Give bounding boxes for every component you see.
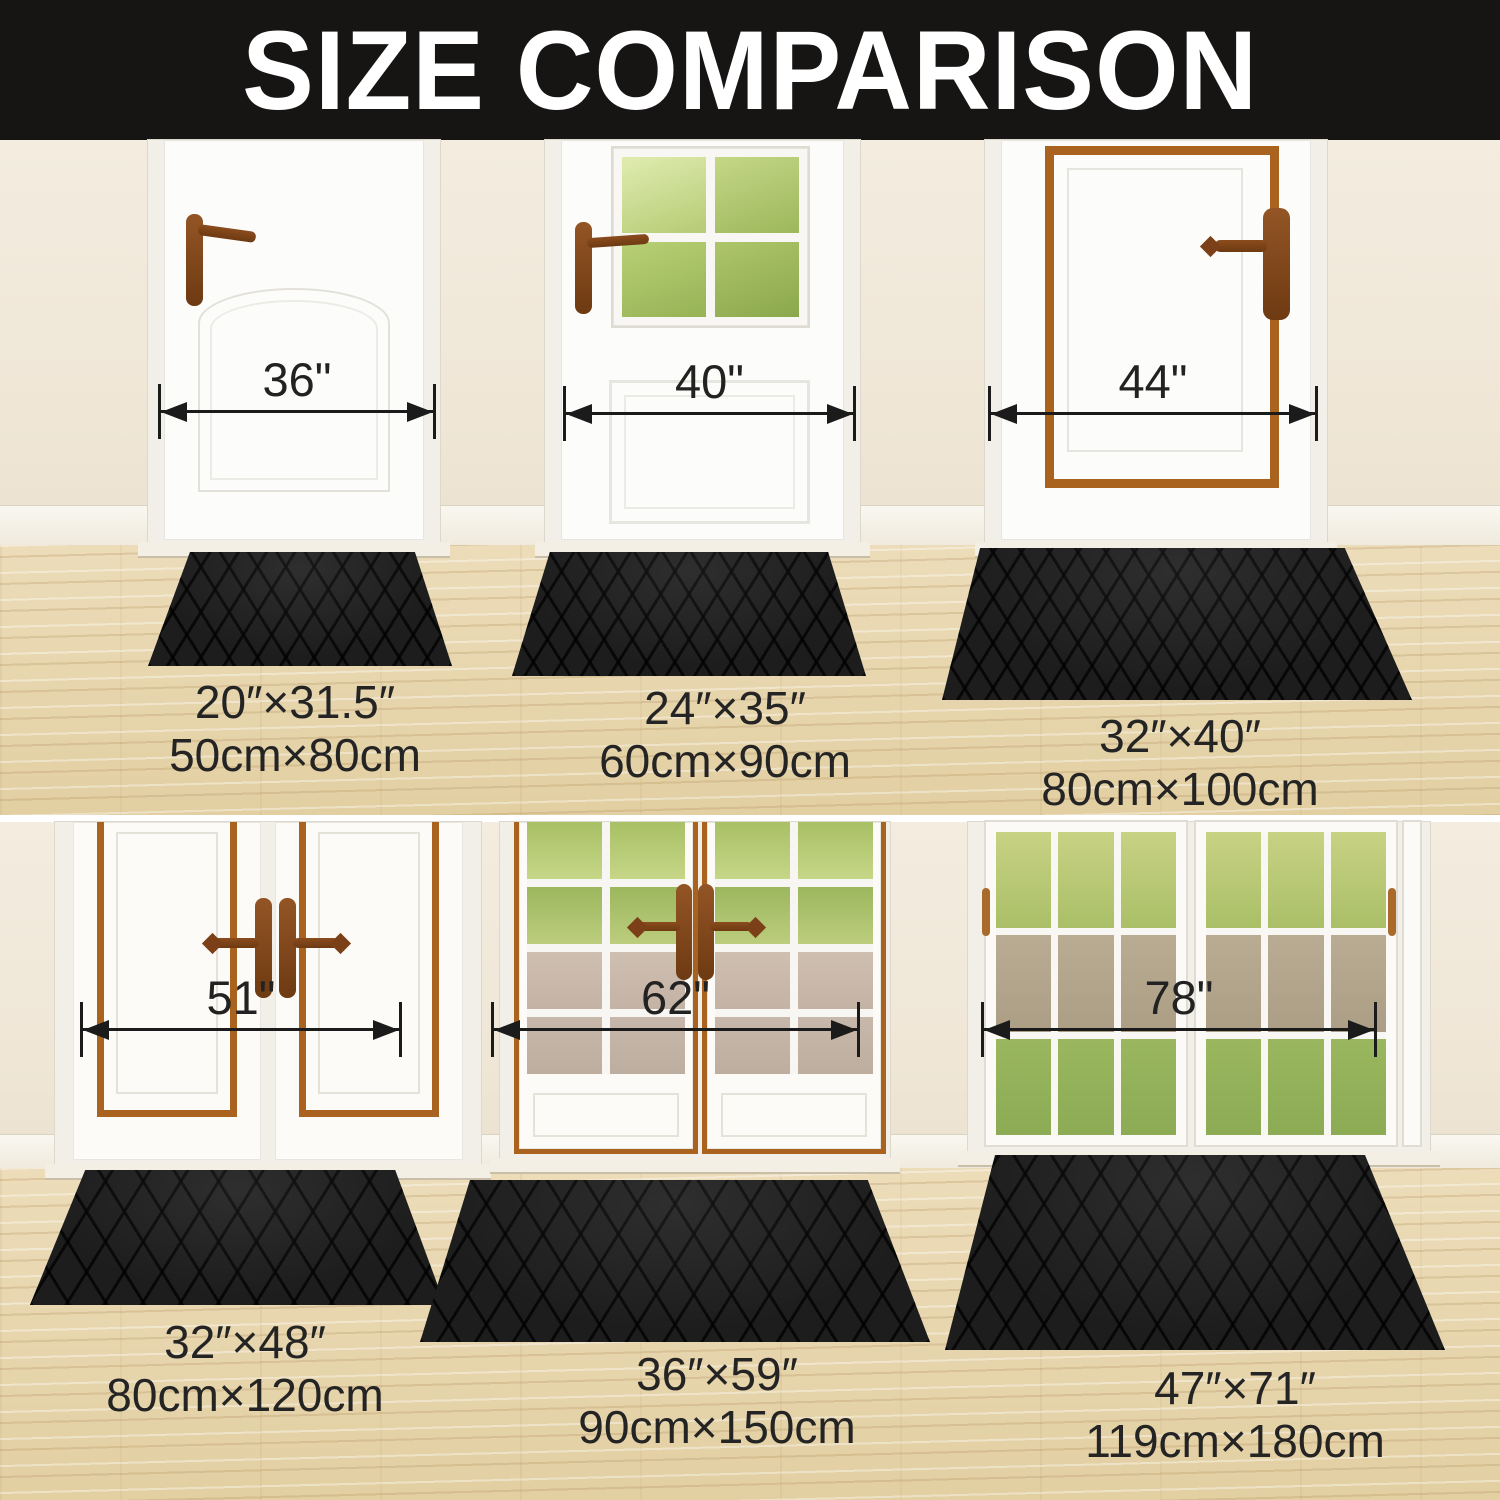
measurement-label: 78"	[981, 970, 1377, 1025]
door-handle-lever	[198, 224, 257, 243]
arrowhead-left-icon	[984, 1020, 1010, 1040]
size-cm: 119cm×180cm	[1070, 1415, 1400, 1468]
doormat-20x31	[148, 552, 452, 666]
doormat-36x59	[420, 1180, 930, 1342]
measurement-51: 51"	[80, 948, 402, 1088]
title-banner: SIZE COMPARISON	[0, 0, 1500, 140]
size-inches: 32″×48″	[80, 1316, 410, 1369]
measurement-tick	[1315, 386, 1318, 441]
size-inches: 24″×35″	[560, 682, 890, 735]
doormat-32x48	[30, 1170, 445, 1305]
doormat-24x35	[512, 552, 866, 676]
panel-divider	[0, 815, 1500, 822]
size-cm: 80cm×100cm	[1015, 763, 1345, 816]
measurement-line	[160, 410, 434, 413]
measurement-line	[82, 1028, 400, 1031]
arrowhead-left-icon	[494, 1020, 520, 1040]
measurement-tick	[433, 384, 436, 439]
arrowhead-right-icon	[407, 402, 433, 422]
measurement-tick	[853, 386, 856, 441]
door-side-frame	[1404, 822, 1420, 1145]
door-handle-lever	[1215, 240, 1267, 252]
measurement-40: 40"	[563, 332, 856, 472]
mat-size-caption: 32″×40″ 80cm×100cm	[1015, 710, 1345, 816]
size-cm: 80cm×120cm	[80, 1369, 410, 1422]
door-lower-panel	[721, 1093, 867, 1137]
measurement-36: 36"	[158, 330, 436, 470]
arrowhead-right-icon	[831, 1020, 857, 1040]
measurement-label: 62"	[491, 970, 860, 1025]
door-handle	[982, 888, 990, 936]
arrowhead-left-icon	[566, 404, 592, 424]
mat-size-caption: 24″×35″ 60cm×90cm	[560, 682, 890, 788]
measurement-label: 44"	[988, 354, 1318, 409]
measurement-tick	[399, 1002, 402, 1057]
measurement-tick	[857, 1002, 860, 1057]
door-lower-panel	[533, 1093, 679, 1137]
measurement-line	[565, 412, 854, 415]
arrowhead-right-icon	[1348, 1020, 1374, 1040]
measurement-label: 40"	[563, 354, 856, 409]
measurement-line	[990, 412, 1316, 415]
size-cm: 60cm×90cm	[560, 735, 890, 788]
arrowhead-right-icon	[1289, 404, 1315, 424]
measurement-label: 36"	[158, 352, 436, 407]
door-handle	[1263, 208, 1290, 320]
arrowhead-left-icon	[991, 404, 1017, 424]
page-title: SIZE COMPARISON	[242, 6, 1258, 135]
measurement-line	[983, 1028, 1375, 1031]
arrowhead-left-icon	[161, 402, 187, 422]
door-sill	[490, 1158, 900, 1174]
measurement-62: 62"	[491, 948, 860, 1088]
mat-size-caption: 20″×31.5″ 50cm×80cm	[130, 676, 460, 782]
measurement-78: 78"	[981, 948, 1377, 1088]
arrowhead-right-icon	[827, 404, 853, 424]
size-cm: 90cm×150cm	[552, 1401, 882, 1454]
measurement-tick	[1374, 1002, 1377, 1057]
measurement-44: 44"	[988, 332, 1318, 472]
door-handle	[575, 222, 592, 314]
size-comparison-infographic: SIZE COMPARISON	[0, 0, 1500, 1500]
measurement-label: 51"	[80, 970, 402, 1025]
size-inches: 32″×40″	[1015, 710, 1345, 763]
doormat-32x40	[942, 548, 1412, 700]
mat-size-caption: 47″×71″ 119cm×180cm	[1070, 1362, 1400, 1468]
arrowhead-right-icon	[373, 1020, 399, 1040]
doormat-47x71	[945, 1155, 1445, 1350]
size-cm: 50cm×80cm	[130, 729, 460, 782]
size-inches: 36″×59″	[552, 1348, 882, 1401]
size-inches: 20″×31.5″	[130, 676, 460, 729]
mat-size-caption: 36″×59″ 90cm×150cm	[552, 1348, 882, 1454]
mat-size-caption: 32″×48″ 80cm×120cm	[80, 1316, 410, 1422]
measurement-line	[493, 1028, 858, 1031]
size-inches: 47″×71″	[1070, 1362, 1400, 1415]
door-handle	[1388, 888, 1396, 936]
arrowhead-left-icon	[83, 1020, 109, 1040]
